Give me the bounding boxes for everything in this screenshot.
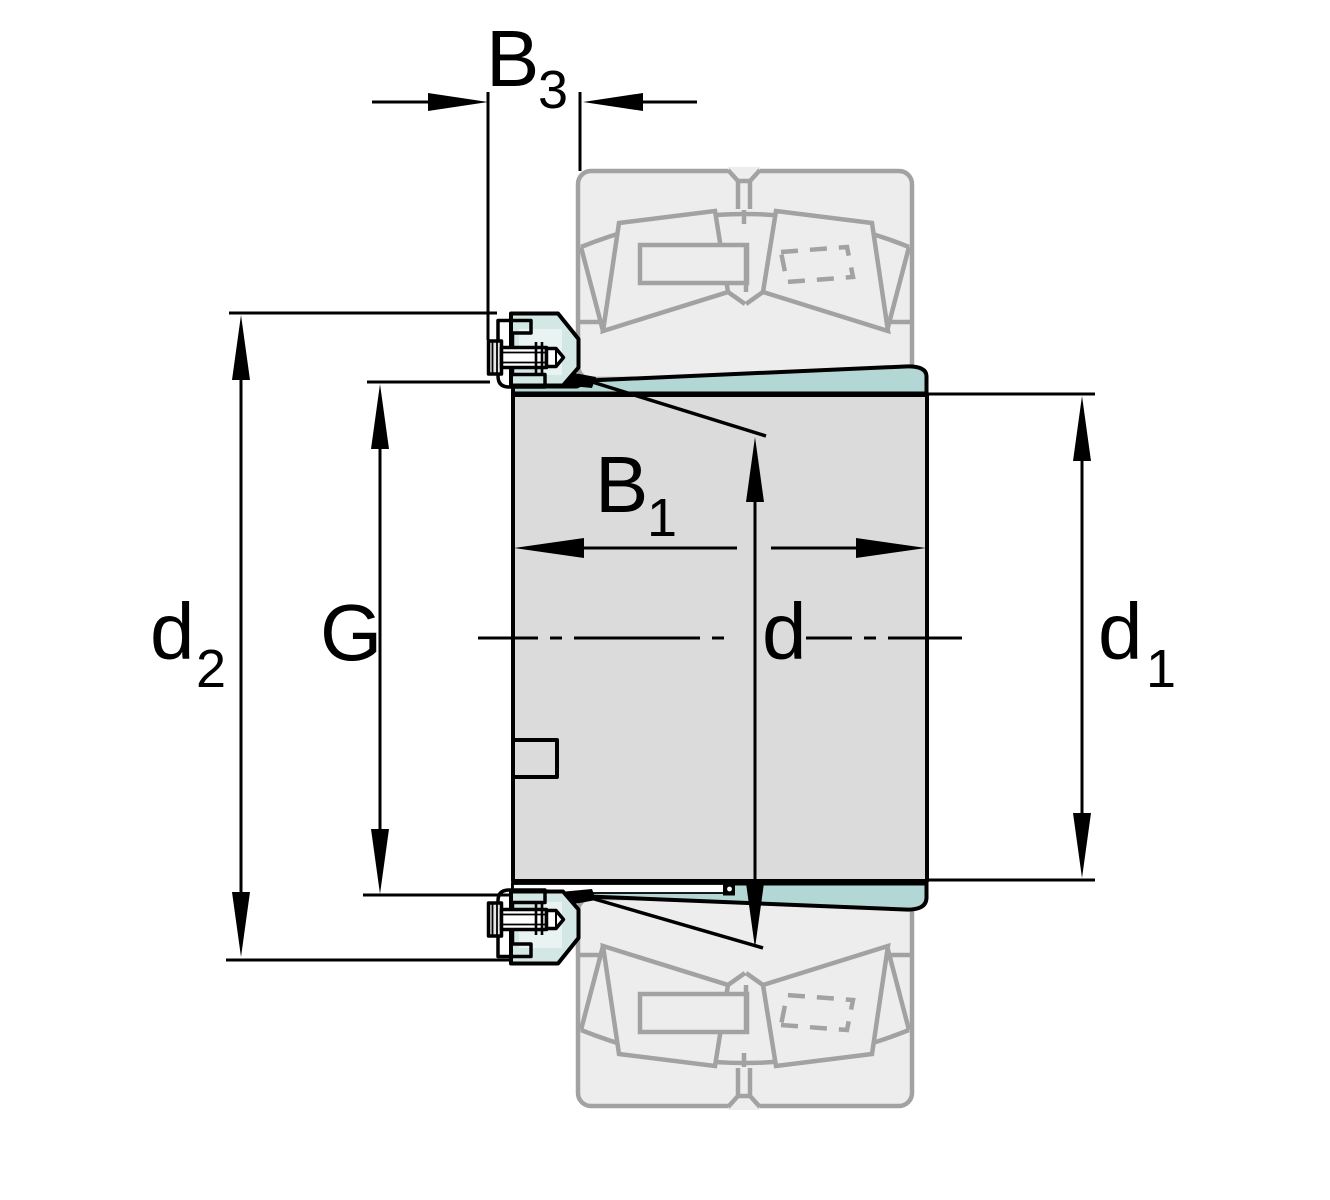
cage-bar	[640, 245, 747, 283]
locknut-bottom	[489, 890, 579, 964]
bearing-ghost-top	[578, 167, 912, 379]
dim-label-b3-main: B	[486, 14, 539, 103]
keyway-slot	[513, 740, 557, 777]
dim-label-b1-main: B	[595, 440, 648, 529]
screw-shaft	[502, 348, 547, 368]
drawing-stage: B 3 B 1 d 2 G d d 1	[0, 0, 1330, 1200]
dim-g-arrow-top	[371, 384, 389, 449]
dim-b3-arrow-right	[583, 93, 643, 111]
dim-d2-arrow-bottom	[232, 892, 250, 957]
slit-end-hole	[727, 887, 732, 892]
dim-label-d1-sub: 1	[1146, 639, 1176, 699]
dim-label-g-main: G	[320, 588, 382, 677]
dim-d2-arrow-top	[232, 315, 250, 380]
locknut-top	[489, 314, 579, 388]
technical-drawing-canvas: B 3 B 1 d 2 G d d 1	[0, 0, 1330, 1200]
dim-label-d2-main: d	[150, 587, 195, 676]
screw-head	[489, 341, 502, 374]
dim-label-d-main: d	[762, 587, 807, 676]
dim-label-d1-main: d	[1098, 587, 1143, 676]
dim-label-d2-sub: 2	[196, 639, 226, 699]
bearing-ghost-bottom	[578, 898, 912, 1110]
dim-b3-extension-lines	[488, 92, 580, 340]
dim-b3-arrow-left	[428, 93, 488, 111]
dim-g-arrow-bottom	[371, 829, 389, 894]
dim-d1-arrow-bottom	[1073, 813, 1091, 878]
dim-label-b3-sub: 3	[538, 60, 568, 120]
dim-label-b1-sub: 1	[647, 488, 677, 548]
dim-d1-arrow-top	[1073, 396, 1091, 461]
